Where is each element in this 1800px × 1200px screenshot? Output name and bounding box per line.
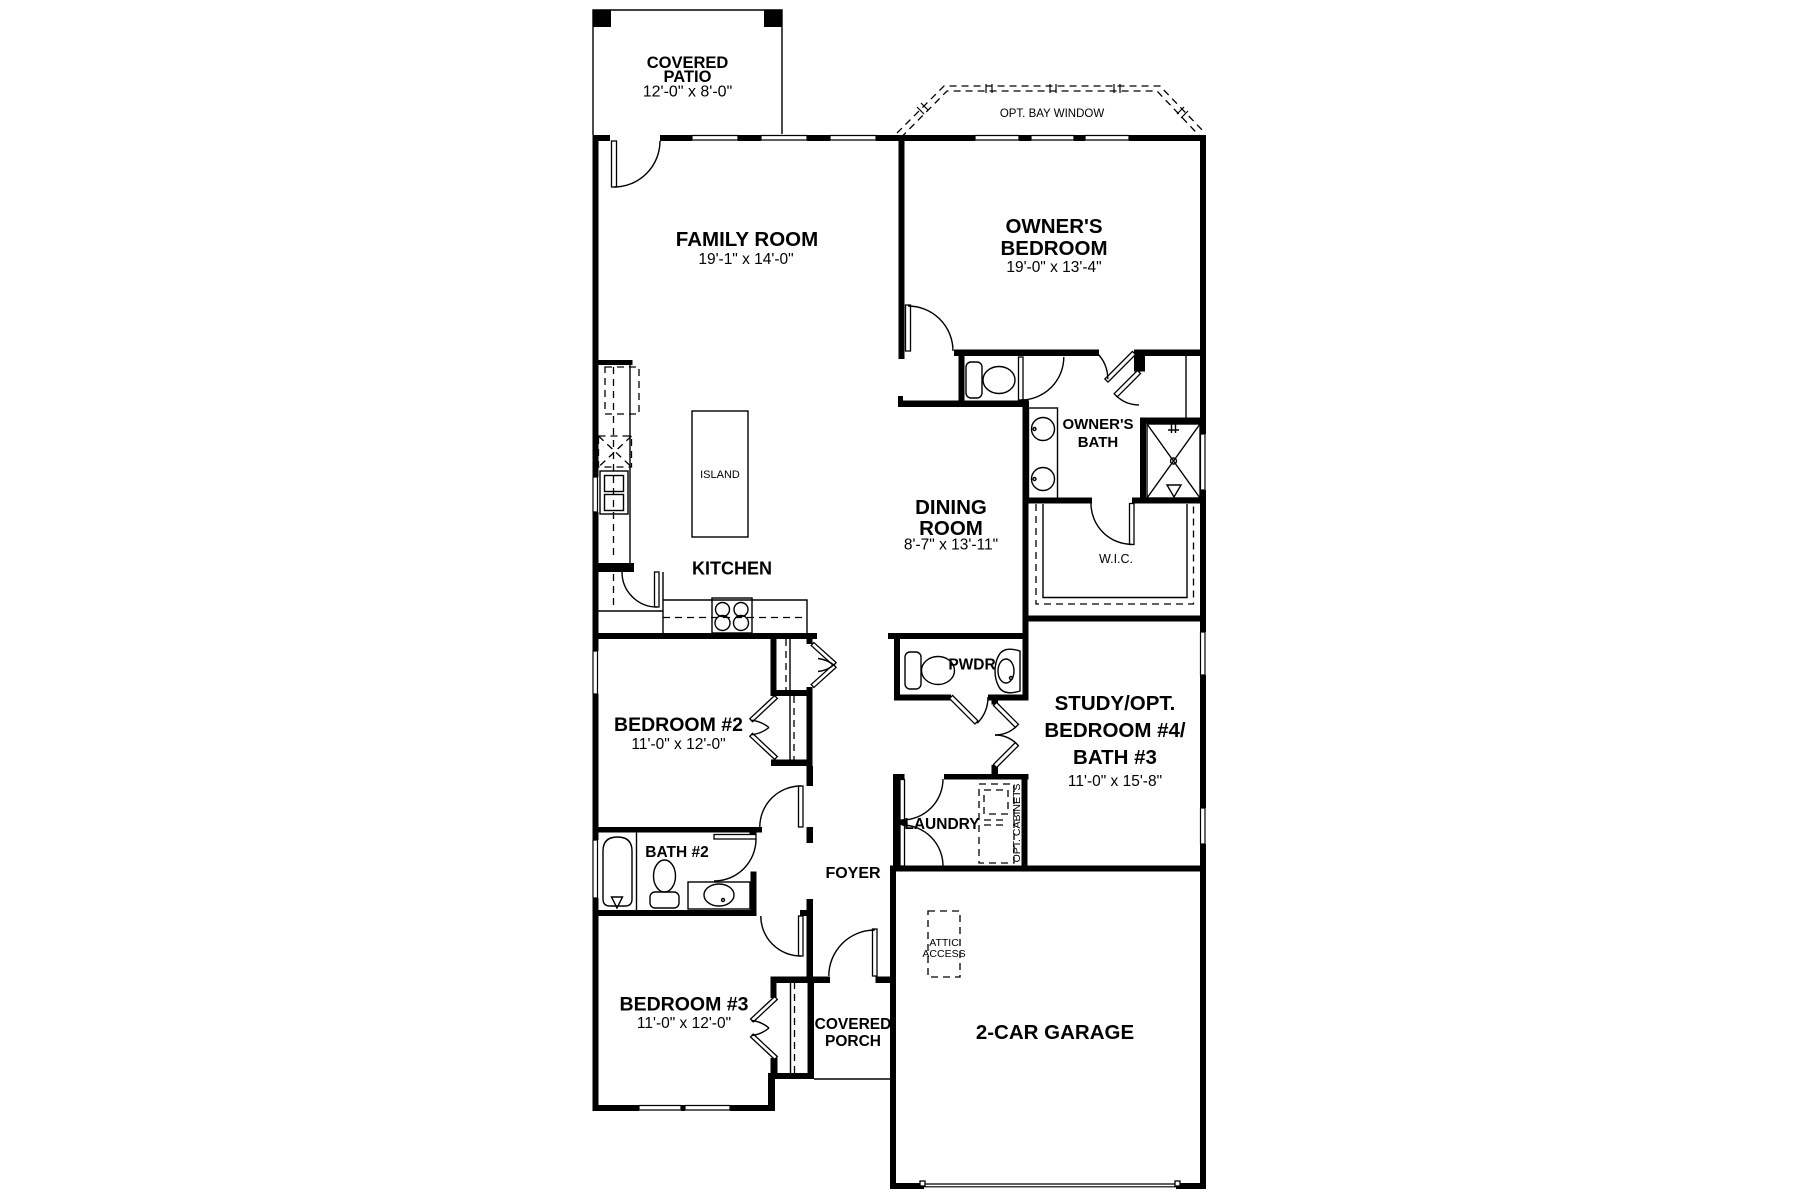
svg-text:BEDROOM #2: BEDROOM #2 [614,714,743,736]
svg-text:BEDROOM #3: BEDROOM #3 [620,994,749,1016]
svg-text:KITCHEN: KITCHEN [692,559,772,579]
svg-text:BEDROOM: BEDROOM [1000,237,1107,260]
svg-text:LAUNDRY: LAUNDRY [904,816,980,833]
svg-text:W.I.C.: W.I.C. [1099,552,1133,566]
svg-text:FOYER: FOYER [825,865,881,882]
svg-text:11'-0" x 12'-0": 11'-0" x 12'-0" [631,736,725,753]
svg-text:FAMILY ROOM: FAMILY ROOM [676,228,818,251]
svg-text:ACCESS: ACCESS [922,948,965,960]
svg-text:ISLAND: ISLAND [700,469,740,481]
svg-text:BATH #3: BATH #3 [1073,746,1157,769]
svg-text:OWNER'S: OWNER'S [1062,416,1133,433]
svg-text:BATH: BATH [1078,434,1119,451]
svg-text:19'-0" x 13'-4": 19'-0" x 13'-4" [1006,259,1101,276]
svg-text:12'-0" x 8'-0": 12'-0" x 8'-0" [643,84,733,101]
svg-text:11'-0" x 15'-8": 11'-0" x 15'-8" [1068,773,1162,790]
svg-text:STUDY/OPT.: STUDY/OPT. [1055,692,1176,715]
svg-text:DINING: DINING [915,496,987,519]
svg-text:BATH #2: BATH #2 [645,844,708,861]
svg-text:COVERED: COVERED [815,1016,892,1033]
svg-text:8'-7" x 13'-11": 8'-7" x 13'-11" [904,537,998,554]
svg-text:PWDR: PWDR [948,657,995,674]
svg-text:BEDROOM #4/: BEDROOM #4/ [1044,719,1186,742]
svg-text:11'-0" x 12'-0": 11'-0" x 12'-0" [637,1015,731,1032]
svg-text:OPT. CABINETS: OPT. CABINETS [1011,784,1023,863]
svg-text:19'-1" x 14'-0": 19'-1" x 14'-0" [698,251,793,268]
svg-text:PORCH: PORCH [825,1033,881,1050]
svg-text:OWNER'S: OWNER'S [1005,215,1102,238]
svg-text:OPT. BAY WINDOW: OPT. BAY WINDOW [1000,108,1105,120]
svg-text:2-CAR GARAGE: 2-CAR GARAGE [976,1021,1134,1044]
